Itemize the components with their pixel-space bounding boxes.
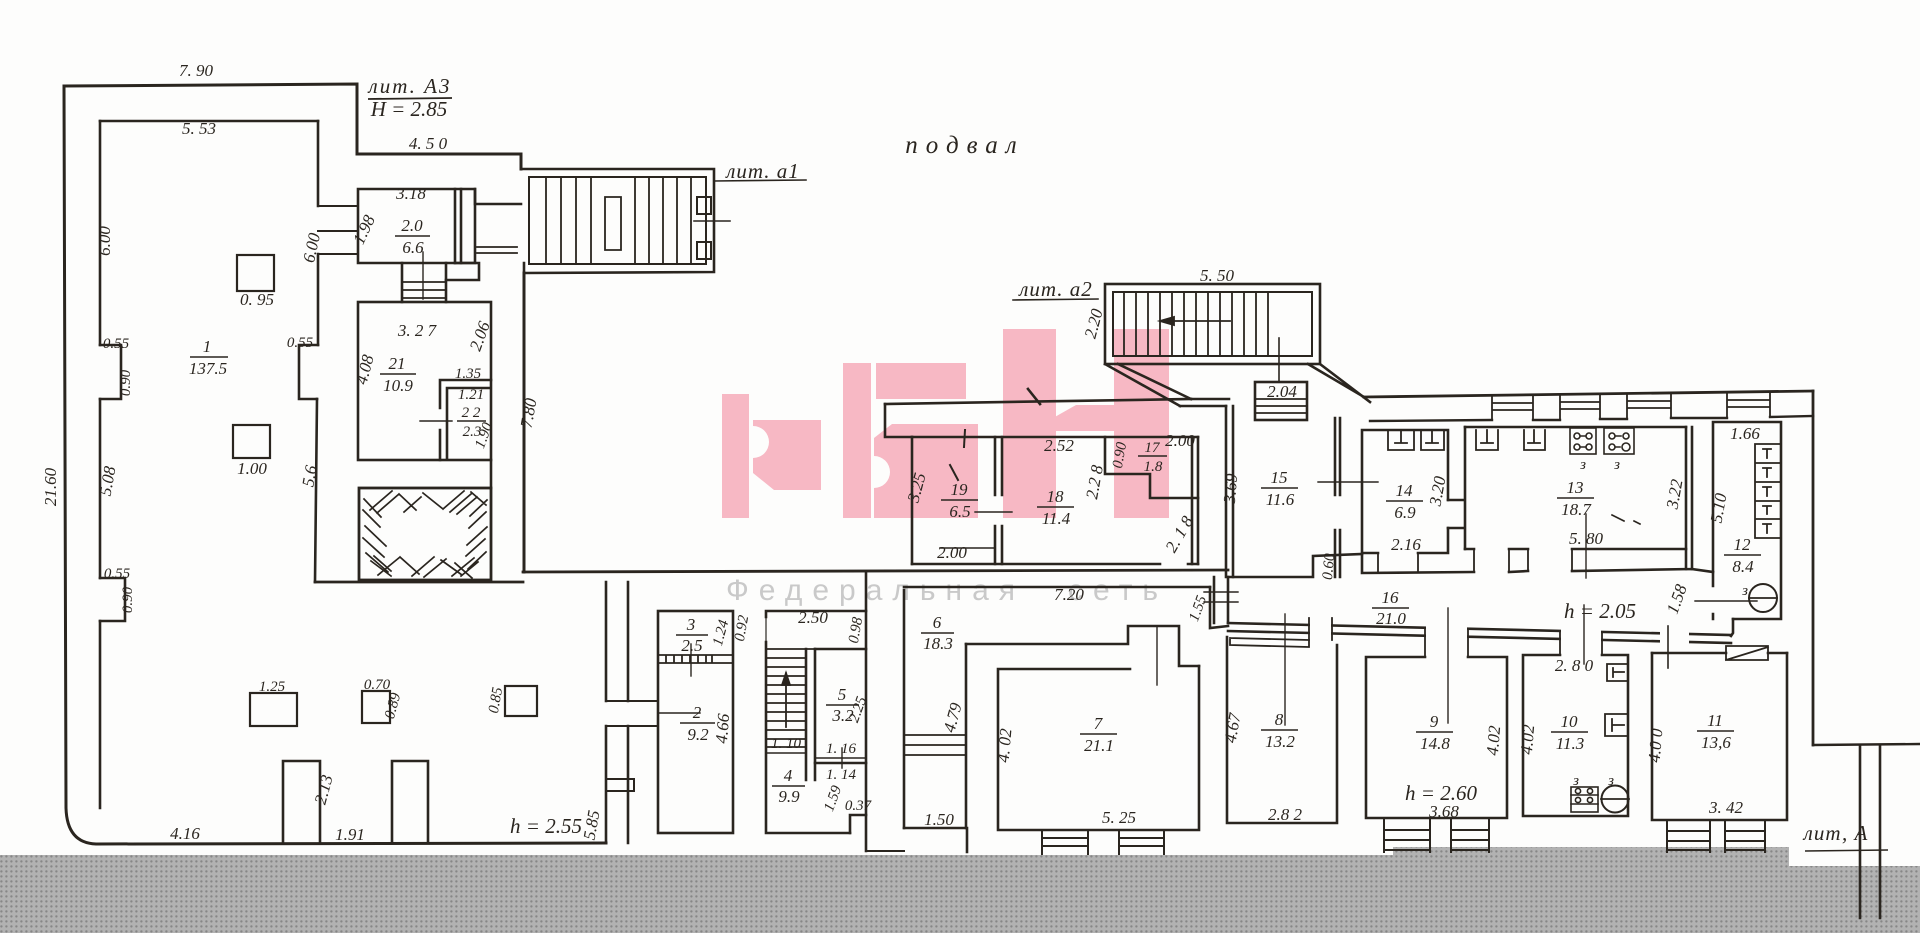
svg-text:6.6: 6.6 [402,238,424,257]
svg-text:0.55: 0.55 [287,335,314,351]
svg-text:2.00: 2.00 [937,543,967,562]
svg-text:17: 17 [1145,440,1162,456]
svg-text:з: з [1741,583,1748,599]
svg-text:2.5: 2.5 [681,636,702,655]
svg-text:2. 8 0: 2. 8 0 [1555,656,1594,675]
svg-text:з: з [1613,457,1620,473]
svg-text:13: 13 [1567,478,1584,497]
svg-text:4.66: 4.66 [712,712,734,744]
svg-text:з: з [1607,773,1614,789]
svg-text:14.8: 14.8 [1420,734,1450,753]
svg-text:подвал: подвал [905,132,1024,159]
svg-text:0.55: 0.55 [104,566,131,582]
svg-text:2.8 2: 2.8 2 [1268,805,1303,824]
svg-text:3.18: 3.18 [395,184,426,203]
svg-text:0.60: 0.60 [1320,552,1338,580]
svg-text:5.6: 5.6 [298,463,320,488]
svg-text:1: 1 [203,337,212,356]
svg-text:18.3: 18.3 [923,634,953,653]
svg-text:Н = 2.85: Н = 2.85 [370,97,448,121]
svg-text:1. 14: 1. 14 [826,767,857,783]
svg-text:1.25: 1.25 [259,679,286,695]
svg-text:11.3: 11.3 [1556,734,1585,753]
svg-text:1.50: 1.50 [924,810,954,829]
svg-text:6.00: 6.00 [95,226,114,256]
svg-text:h = 2.55: h = 2.55 [510,814,582,838]
svg-text:10: 10 [1561,712,1579,731]
svg-text:13.2: 13.2 [1265,732,1295,751]
svg-text:Федеральная: Федеральная [726,574,1025,607]
svg-text:1.8: 1.8 [1144,459,1163,475]
svg-text:4.02: 4.02 [1517,723,1539,755]
svg-text:21.0: 21.0 [1376,609,1406,628]
svg-text:1.91: 1.91 [335,825,365,844]
svg-text:6.9: 6.9 [1394,503,1416,522]
svg-text:0. 95: 0. 95 [240,290,274,309]
svg-text:h = 2.05: h = 2.05 [1564,599,1636,623]
svg-text:8.4: 8.4 [1732,557,1754,576]
svg-text:лит. А3: лит. А3 [368,74,452,98]
svg-text:18: 18 [1047,487,1065,506]
svg-text:5. 53: 5. 53 [182,119,216,138]
svg-text:лит. а1: лит. а1 [725,159,800,183]
svg-text:4.02: 4.02 [1483,724,1505,756]
svg-text:4.0 0: 4.0 0 [1645,727,1667,763]
svg-text:2.0: 2.0 [401,216,423,235]
svg-text:1. 16: 1. 16 [826,741,857,757]
svg-text:8: 8 [1275,710,1284,729]
svg-text:1.21: 1.21 [458,387,484,403]
svg-text:3. 42: 3. 42 [1708,798,1744,817]
svg-text:2.00: 2.00 [1165,431,1195,450]
svg-text:14: 14 [1396,481,1414,500]
svg-text:4. 5 0: 4. 5 0 [409,134,448,153]
svg-text:21.60: 21.60 [41,467,60,506]
svg-text:3.68: 3.68 [1428,802,1459,821]
svg-text:2.04: 2.04 [1267,382,1297,401]
svg-text:2.50: 2.50 [798,608,828,627]
svg-text:1.66: 1.66 [1730,424,1760,443]
svg-text:1. 10: 1. 10 [771,736,802,752]
svg-text:4. 02: 4. 02 [994,727,1016,763]
svg-text:2: 2 [693,703,702,722]
svg-text:0.37: 0.37 [845,798,873,814]
svg-text:3.69: 3.69 [1220,472,1242,505]
svg-text:4: 4 [784,766,793,785]
svg-text:16: 16 [1382,588,1400,607]
svg-text:5. 80: 5. 80 [1569,529,1604,548]
svg-text:9: 9 [1430,712,1439,731]
svg-text:21.1: 21.1 [1084,736,1114,755]
svg-text:11.6: 11.6 [1266,490,1295,509]
svg-text:5. 50: 5. 50 [1200,266,1235,285]
svg-text:0.90: 0.90 [118,369,134,396]
svg-text:137.5: 137.5 [189,359,227,378]
svg-text:11: 11 [1707,711,1723,730]
svg-text:2.16: 2.16 [1391,535,1421,554]
svg-text:2.52: 2.52 [1044,436,1074,455]
svg-text:18.7: 18.7 [1561,500,1592,519]
svg-text:лит, А: лит, А [1803,821,1869,845]
svg-text:11.4: 11.4 [1042,509,1071,528]
svg-text:2 2: 2 2 [462,405,481,421]
svg-text:з: з [1572,773,1579,789]
svg-text:9.2: 9.2 [687,725,709,744]
svg-text:0.90: 0.90 [120,586,136,613]
svg-text:3. 2 7: 3. 2 7 [397,321,438,340]
svg-text:10.9: 10.9 [383,376,413,395]
svg-text:3: 3 [686,615,696,634]
svg-text:4.16: 4.16 [170,824,200,843]
svg-text:7. 90: 7. 90 [179,61,214,80]
svg-text:1.00: 1.00 [237,459,267,478]
svg-text:1.35: 1.35 [455,366,482,382]
svg-text:19: 19 [951,480,969,499]
svg-text:21: 21 [389,354,406,373]
svg-text:5: 5 [838,685,847,704]
svg-text:15: 15 [1271,468,1288,487]
svg-text:12: 12 [1734,535,1752,554]
svg-text:6.5: 6.5 [949,502,970,521]
svg-text:0.55: 0.55 [103,336,130,352]
svg-text:6: 6 [933,613,942,632]
svg-text:9.9: 9.9 [778,787,800,806]
svg-text:7.20: 7.20 [1054,585,1084,604]
svg-text:13,6: 13,6 [1701,733,1731,752]
svg-text:0.70: 0.70 [364,677,391,693]
svg-text:з: з [1579,457,1586,473]
svg-text:лит. а2: лит. а2 [1018,277,1093,301]
svg-text:5. 25: 5. 25 [1102,808,1136,827]
